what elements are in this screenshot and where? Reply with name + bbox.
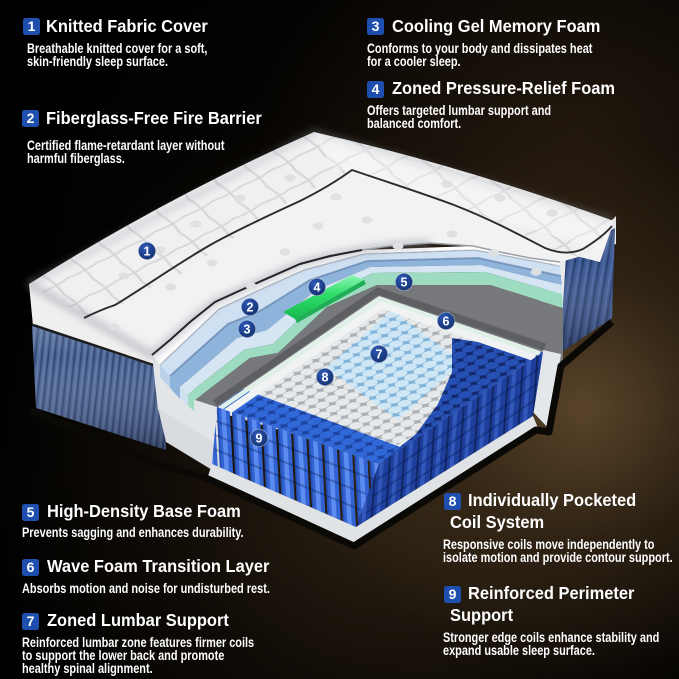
svg-text:8: 8 — [322, 371, 329, 385]
svg-text:2: 2 — [247, 301, 254, 315]
svg-text:4: 4 — [314, 281, 321, 295]
svg-text:6: 6 — [443, 315, 450, 329]
svg-text:9: 9 — [256, 432, 263, 446]
svg-text:3: 3 — [244, 323, 251, 337]
svg-text:1: 1 — [144, 245, 151, 259]
svg-text:5: 5 — [401, 276, 408, 290]
svg-text:7: 7 — [376, 348, 383, 362]
